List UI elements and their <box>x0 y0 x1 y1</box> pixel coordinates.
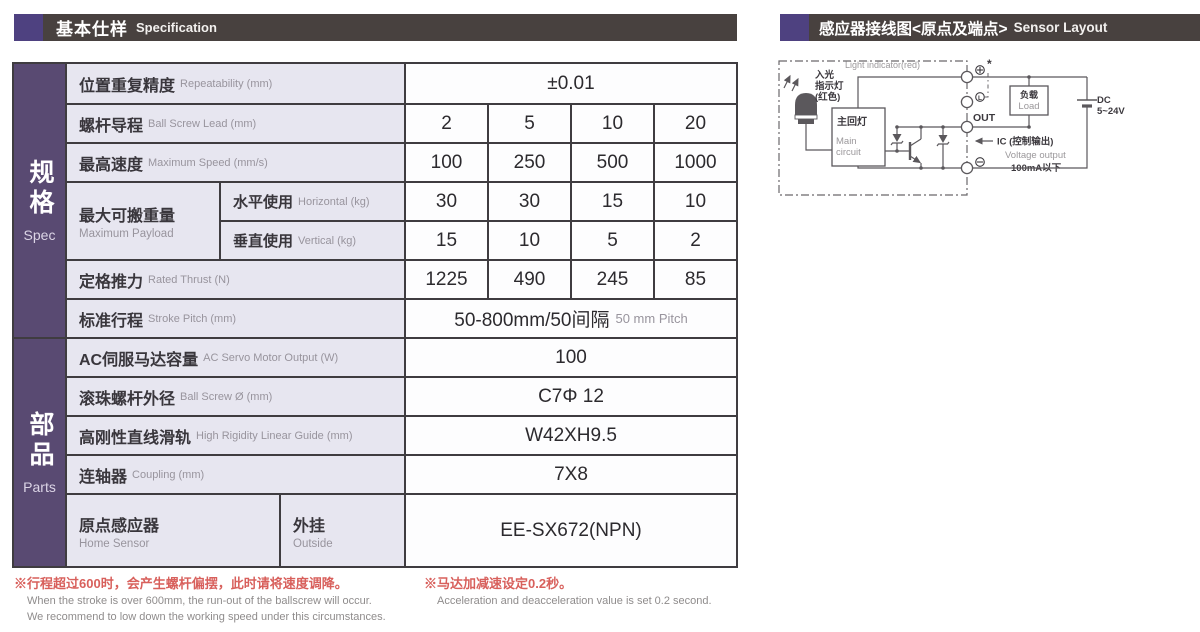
led-label-zh1: 入光 <box>814 69 835 81</box>
row-value: 30 <box>487 183 570 220</box>
battery-icon <box>1077 100 1097 106</box>
light-indicator-label: Light indicator(red) <box>845 60 920 70</box>
footnote-en: Acceleration and deacceleration value is… <box>437 594 754 608</box>
sidebar-parts-block: 部品 Parts <box>14 337 65 566</box>
accent-square <box>14 14 43 41</box>
main-circuit-label-zh: 主回灯 <box>837 115 867 128</box>
row-label-en: Maximum Payload <box>79 228 174 240</box>
table-row-repeatability: 位置重复精度 Repeatability (mm) ±0.01 <box>67 64 736 103</box>
row-value: 50-800mm/50间隔 50 mm Pitch <box>406 300 736 337</box>
payload-subrows: 水平使用 Horizontal (kg) 30 30 15 10 垂直使用 Ve… <box>221 183 736 259</box>
row-value: 10 <box>487 222 570 259</box>
main-circuit-label-en1: Main <box>836 136 857 147</box>
row-label-en: Ball Screw Lead (mm) <box>148 118 256 130</box>
spec-header-title-en: Specification <box>136 20 217 35</box>
row-label-en: Maximum Speed (mm/s) <box>148 157 268 169</box>
row-label-zh: 定格推力 <box>79 268 143 292</box>
row-label: 定格推力 Rated Thrust (N) <box>67 261 406 298</box>
zener-diode-icon <box>937 127 949 168</box>
subrow-label-en: Vertical (kg) <box>298 235 356 247</box>
row-label-zh: 最高速度 <box>79 151 143 175</box>
terminal-plus <box>961 71 972 82</box>
led-indicator-icon <box>784 76 817 124</box>
row-value: 85 <box>653 261 736 298</box>
footnote-zh: ※行程超过600时，会产生螺杆偏摆，此时请将速度调降。 <box>14 575 414 592</box>
row-label-zh: 位置重复精度 <box>79 72 175 96</box>
row-value: 245 <box>570 261 653 298</box>
row-label-payload: 最大可搬重量 Maximum Payload <box>67 183 221 259</box>
sidebar-parts-label-zh: 部品 <box>27 411 52 471</box>
row-label-en: Repeatability (mm) <box>180 78 272 90</box>
row-value: 490 <box>487 261 570 298</box>
asterisk-label: * <box>987 57 992 71</box>
sensor-header-title-en: Sensor Layout <box>1014 20 1108 35</box>
row-label-en: Coupling (mm) <box>132 469 204 481</box>
row-value: 500 <box>570 144 653 181</box>
footnote-en: When the stroke is over 600mm, the run-o… <box>27 594 414 608</box>
row-label-zh: 连轴器 <box>79 463 127 487</box>
spec-header-title-zh: 基本仕样 <box>56 15 128 40</box>
row-value: 100 <box>406 339 736 376</box>
sidebar-spec-block: 规格 Spec <box>14 64 65 337</box>
led-label-zh3: (红色) <box>815 91 840 103</box>
stroke-value-zh: 50-800mm/50间隔 <box>454 305 609 332</box>
out-terminal-label: OUT <box>973 112 996 124</box>
table-row-ball-screw-dia: 滚珠螺杆外径 Ball Screw Ø (mm) C7Φ 12 <box>67 376 736 415</box>
table-row-max-payload: 最大可搬重量 Maximum Payload 水平使用 Horizontal (… <box>67 181 736 259</box>
row-label-outside: 外挂 Outside <box>281 495 406 566</box>
row-label-en: Stroke Pitch (mm) <box>148 313 236 325</box>
row-value: 2 <box>653 222 736 259</box>
row-label-zh: 外挂 <box>293 512 325 536</box>
voltage-output-label: Voltage output <box>1005 150 1066 161</box>
sidebar-spec-label-zh: 规格 <box>27 159 52 219</box>
row-value: 250 <box>487 144 570 181</box>
minus-symbol-icon <box>976 158 985 167</box>
l-symbol-icon: L <box>976 93 985 102</box>
table-row-stroke-pitch: 标准行程 Stroke Pitch (mm) 50-800mm/50间隔 50 … <box>67 298 736 337</box>
row-value: 20 <box>653 105 736 142</box>
table-row-coupling: 连轴器 Coupling (mm) 7X8 <box>67 454 736 493</box>
wiring-diagram-svg: Light indicator(red) 入光 指示灯 (红色) 主回灯 Mai… <box>775 53 1195 205</box>
row-value: 15 <box>406 222 487 259</box>
spec-section-header: 基本仕样 Specification <box>14 14 737 41</box>
accent-square <box>780 14 809 41</box>
row-value: 5 <box>487 105 570 142</box>
light-arrow-icon <box>784 76 790 88</box>
row-label-en: Home Sensor <box>79 538 149 550</box>
sensor-section-header: 感应器接线图<原点及端点> Sensor Layout <box>780 14 1200 41</box>
table-row-rated-thrust: 定格推力 Rated Thrust (N) 1225 490 245 85 <box>67 259 736 298</box>
row-value: 15 <box>570 183 653 220</box>
row-label: 高刚性直线滑轨 High Rigidity Linear Guide (mm) <box>67 417 406 454</box>
row-value: 10 <box>570 105 653 142</box>
footnote-zh: ※马达加减速设定0.2秒。 <box>424 575 754 592</box>
row-value: C7Φ 12 <box>406 378 736 415</box>
sensor-wiring-diagram: Light indicator(red) 入光 指示灯 (红色) 主回灯 Mai… <box>775 53 1195 205</box>
row-label-en: AC Servo Motor Output (W) <box>203 352 338 364</box>
subrow-label: 垂直使用 Vertical (kg) <box>221 222 406 259</box>
subrow-horizontal: 水平使用 Horizontal (kg) 30 30 15 10 <box>221 183 736 220</box>
load-label-zh: 负载 <box>1020 89 1038 100</box>
load-label-en: Load <box>1018 101 1039 112</box>
light-arrow-icon <box>792 79 798 91</box>
table-rows: 位置重复精度 Repeatability (mm) ±0.01 螺杆导程 Bal… <box>67 64 736 566</box>
main-circuit-label-en2: circuit <box>836 147 861 158</box>
row-label: 最高速度 Maximum Speed (mm/s) <box>67 144 406 181</box>
row-label: 滚珠螺杆外径 Ball Screw Ø (mm) <box>67 378 406 415</box>
table-row-home-sensor: 原点感应器 Home Sensor 外挂 Outside EE-SX672(NP… <box>67 493 736 566</box>
datasheet-page: 基本仕样 Specification 感应器接线图<原点及端点> Sensor … <box>0 0 1200 632</box>
table-row-servo-output: AC伺服马达容量 AC Servo Motor Output (W) 100 <box>67 337 736 376</box>
row-value: 30 <box>406 183 487 220</box>
table-row-max-speed: 最高速度 Maximum Speed (mm/s) 100 250 500 10… <box>67 142 736 181</box>
footnote-acceleration: ※马达加减速设定0.2秒。 Acceleration and deacceler… <box>424 575 754 608</box>
row-label-zh: AC伺服马达容量 <box>79 346 198 370</box>
table-row-linear-guide: 高刚性直线滑轨 High Rigidity Linear Guide (mm) … <box>67 415 736 454</box>
stroke-value-en: 50 mm Pitch <box>615 311 687 326</box>
subrow-label-en: Horizontal (kg) <box>298 196 370 208</box>
sidebar-parts-label-en: Parts <box>23 479 56 495</box>
subrow-label-zh: 垂直使用 <box>233 230 293 251</box>
spec-table: 规格 Spec 部品 Parts 位置重复精度 Repeatability (m… <box>12 62 738 568</box>
row-label-en: Rated Thrust (N) <box>148 274 230 286</box>
row-label-zh: 高刚性直线滑轨 <box>79 424 191 448</box>
row-label-zh: 螺杆导程 <box>79 112 143 136</box>
row-label-zh: 标准行程 <box>79 307 143 331</box>
row-label-en: Ball Screw Ø (mm) <box>180 391 272 403</box>
row-label-zh: 最大可搬重量 <box>79 202 175 226</box>
dc-label-line1: DC <box>1097 95 1111 106</box>
table-sidebar: 规格 Spec 部品 Parts <box>14 64 67 566</box>
row-value: EE-SX672(NPN) <box>406 495 736 566</box>
l-terminal-label: L <box>978 95 982 102</box>
row-label: 连轴器 Coupling (mm) <box>67 456 406 493</box>
ic-label: IC (控制输出) <box>997 136 1053 148</box>
row-label-en: Outside <box>293 538 333 550</box>
sensor-header-title-zh: 感应器接线图<原点及端点> <box>819 17 1008 39</box>
row-label-zh: 原点感应器 <box>79 512 159 536</box>
subrow-label: 水平使用 Horizontal (kg) <box>221 183 406 220</box>
row-label-zh: 滚珠螺杆外径 <box>79 385 175 409</box>
sidebar-spec-label-en: Spec <box>24 227 56 243</box>
footnote-en: We recommend to low down the working spe… <box>27 610 414 624</box>
row-label: 螺杆导程 Ball Screw Lead (mm) <box>67 105 406 142</box>
row-value: 5 <box>570 222 653 259</box>
row-label: 标准行程 Stroke Pitch (mm) <box>67 300 406 337</box>
plus-symbol-icon <box>976 66 985 75</box>
row-value: 1000 <box>653 144 736 181</box>
row-value: 1225 <box>406 261 487 298</box>
dc-label-line2: 5~24V <box>1097 106 1125 117</box>
row-label: 位置重复精度 Repeatability (mm) <box>67 64 406 103</box>
row-label-home-sensor: 原点感应器 Home Sensor <box>67 495 281 566</box>
subrow-vertical: 垂直使用 Vertical (kg) 15 10 5 2 <box>221 220 736 259</box>
row-value: 2 <box>406 105 487 142</box>
subrow-label-zh: 水平使用 <box>233 191 293 212</box>
table-row-ball-screw-lead: 螺杆导程 Ball Screw Lead (mm) 2 5 10 20 <box>67 103 736 142</box>
row-value: W42XH9.5 <box>406 417 736 454</box>
row-label: AC伺服马达容量 AC Servo Motor Output (W) <box>67 339 406 376</box>
led-label-zh2: 指示灯 <box>815 80 844 92</box>
row-value: 10 <box>653 183 736 220</box>
footnote-stroke: ※行程超过600时，会产生螺杆偏摆，此时请将速度调降。 When the str… <box>14 575 414 624</box>
transistor-icon <box>908 127 921 168</box>
row-value: 100 <box>406 144 487 181</box>
zener-diode-icon <box>891 127 903 151</box>
row-value: 7X8 <box>406 456 736 493</box>
terminal-minus <box>961 162 972 173</box>
terminal-out <box>961 121 972 132</box>
row-label-en: High Rigidity Linear Guide (mm) <box>196 430 353 442</box>
terminal-l <box>961 96 972 107</box>
row-value: ±0.01 <box>406 64 736 103</box>
